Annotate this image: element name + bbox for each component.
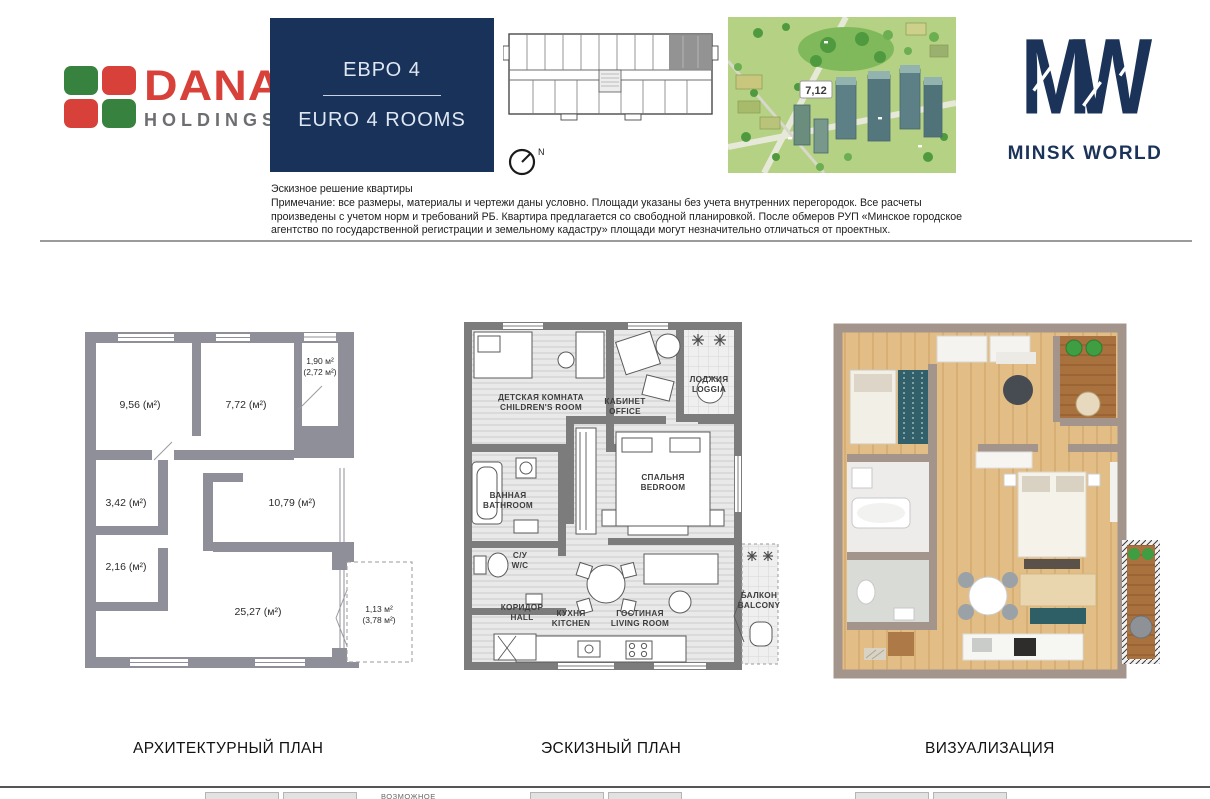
area-room4: 2,16 (м²): [105, 561, 146, 573]
visualization-render: [828, 312, 1163, 687]
dana-holdings-logo: DANA HOLDINGS: [64, 66, 264, 138]
disclaimer: Эскизное решение квартиры Примечание: вс…: [271, 183, 966, 238]
area-room5: 10,79 (м²): [269, 497, 316, 509]
dana-square-red-tr: [102, 66, 136, 95]
footer-box: [855, 792, 929, 799]
room-label-living-en: LIVING ROOM: [611, 619, 669, 628]
unit-type-en: EURO 4 ROOMS: [298, 109, 466, 132]
plan-sheet: DANA HOLDINGS ЕВРО 4 EURO 4 ROOMS: [0, 0, 1210, 799]
room-label-balcony-ru: БАЛКОН: [741, 591, 777, 600]
room-label-kitchen-en: KITCHEN: [552, 619, 591, 628]
room-label-balcony-en: BALCONY: [738, 601, 780, 610]
room-label-bathroom-en: BATHROOM: [483, 501, 533, 510]
caption-architectural-plan: АРХИТЕКТУРНЫЙ ПЛАН: [133, 740, 323, 758]
compass-north-label: N: [538, 147, 545, 157]
sketch-plan: ДЕТСКАЯ КОМНАТА CHILDREN'S ROOM КАБИНЕТ …: [458, 316, 780, 678]
unit-type-ru: ЕВРО 4: [343, 59, 421, 82]
room-label-bedroom-en: BEDROOM: [641, 483, 686, 492]
svg-text:W: W: [1073, 28, 1153, 136]
footer-partial-label: ВОЗМОЖНОЕ: [381, 792, 436, 799]
footer-box: [530, 792, 604, 799]
room-label-wc-en: W/C: [512, 561, 529, 570]
disclaimer-title: Эскизное решение квартиры: [271, 183, 966, 197]
room-label-bedroom-ru: СПАЛЬНЯ: [641, 473, 684, 482]
compass-icon: N: [506, 143, 552, 179]
dana-holdings-label: HOLDINGS: [144, 110, 279, 131]
area-loggia-2: (2,72 м²): [303, 367, 336, 377]
dana-square-green-br: [102, 99, 136, 128]
room-label-hall-ru: КОРИДОР: [501, 603, 544, 612]
footer-divider: [0, 786, 1210, 788]
building-number-label: 7,12: [805, 85, 826, 97]
header-divider: [40, 240, 1192, 242]
area-room6: 25,27 (м²): [235, 606, 282, 618]
unit-type-divider: [323, 95, 441, 96]
dana-square-red-bl: [64, 99, 98, 128]
room-label-living-ru: ГОСТИНАЯ: [616, 609, 664, 618]
footer-box: [283, 792, 357, 799]
area-room2: 7,72 (м²): [225, 399, 266, 411]
room-label-bathroom-ru: ВАННАЯ: [490, 491, 527, 500]
caption-sketch-plan: ЭСКИЗНЫЙ ПЛАН: [541, 740, 681, 758]
room-label-wc-ru: С/У: [513, 551, 528, 560]
unit-type-box: ЕВРО 4 EURO 4 ROOMS: [270, 18, 494, 172]
footer-box: [205, 792, 279, 799]
room-label-children-ru: ДЕТСКАЯ КОМНАТА: [498, 393, 584, 402]
room-label-hall-en: HALL: [510, 613, 533, 622]
room-label-loggia-en: LOGGIA: [692, 385, 726, 394]
minsk-world-wordmark: MINSK WORLD: [1005, 143, 1165, 165]
minsk-world-logo: M W MINSK WORLD: [1005, 28, 1165, 168]
building-floor-plan-thumbnail: [503, 28, 721, 142]
area-balcony-1: 1,13 м²: [365, 604, 393, 614]
minsk-world-monogram-icon: M W: [1010, 28, 1160, 136]
caption-visualization: ВИЗУАЛИЗАЦИЯ: [925, 740, 1055, 758]
dana-squares-icon: [64, 66, 136, 130]
footer-box: [933, 792, 1007, 799]
disclaimer-body: Примечание: все размеры, материалы и чер…: [271, 197, 966, 238]
room-label-office-ru: КАБИНЕТ: [604, 397, 645, 406]
room-label-children-en: CHILDREN'S ROOM: [500, 403, 582, 412]
area-room3: 3,42 (м²): [105, 497, 146, 509]
area-room1: 9,56 (м²): [119, 399, 160, 411]
aerial-render: 7,12: [728, 17, 956, 173]
footer-box: [608, 792, 682, 799]
room-label-kitchen-ru: КУХНЯ: [556, 609, 585, 618]
room-label-office-en: OFFICE: [609, 407, 641, 416]
room-label-loggia-ru: ЛОДЖИЯ: [690, 375, 729, 384]
dana-square-green-tl: [64, 66, 98, 95]
dana-wordmark: DANA: [144, 66, 290, 106]
viz-balcony: [1122, 540, 1160, 664]
architectural-plan: 9,56 (м²) 7,72 (м²) 3,42 (м²) 2,16 (м²) …: [70, 318, 420, 678]
area-loggia-1: 1,90 м²: [306, 356, 334, 366]
area-balcony-2: (3,78 м²): [362, 615, 395, 625]
highlighted-unit: [669, 34, 712, 70]
